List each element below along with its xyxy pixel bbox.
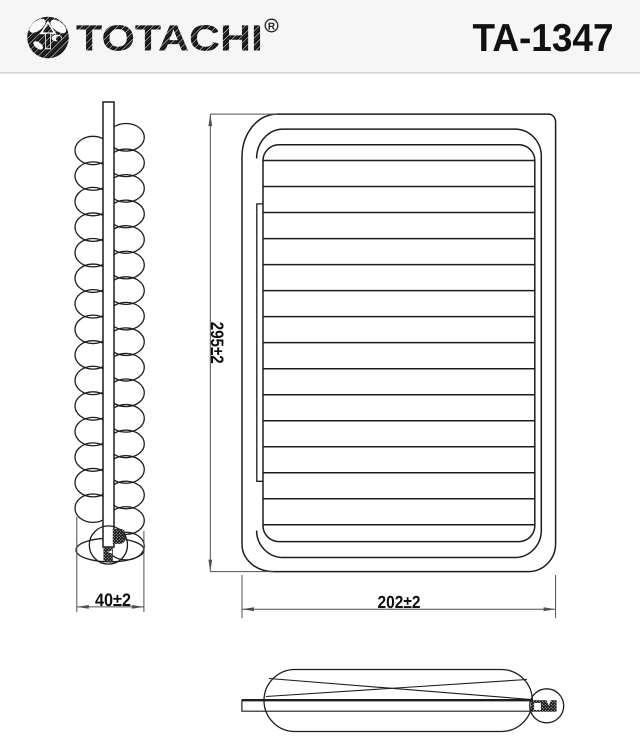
svg-text:TOTACHI: TOTACHI [76, 18, 263, 59]
svg-text:202±2: 202±2 [378, 592, 421, 612]
svg-text:TA-1347: TA-1347 [473, 17, 614, 60]
svg-text:295±2: 295±2 [207, 322, 227, 364]
svg-text:R: R [268, 21, 276, 32]
svg-text:40±2: 40±2 [95, 590, 131, 610]
